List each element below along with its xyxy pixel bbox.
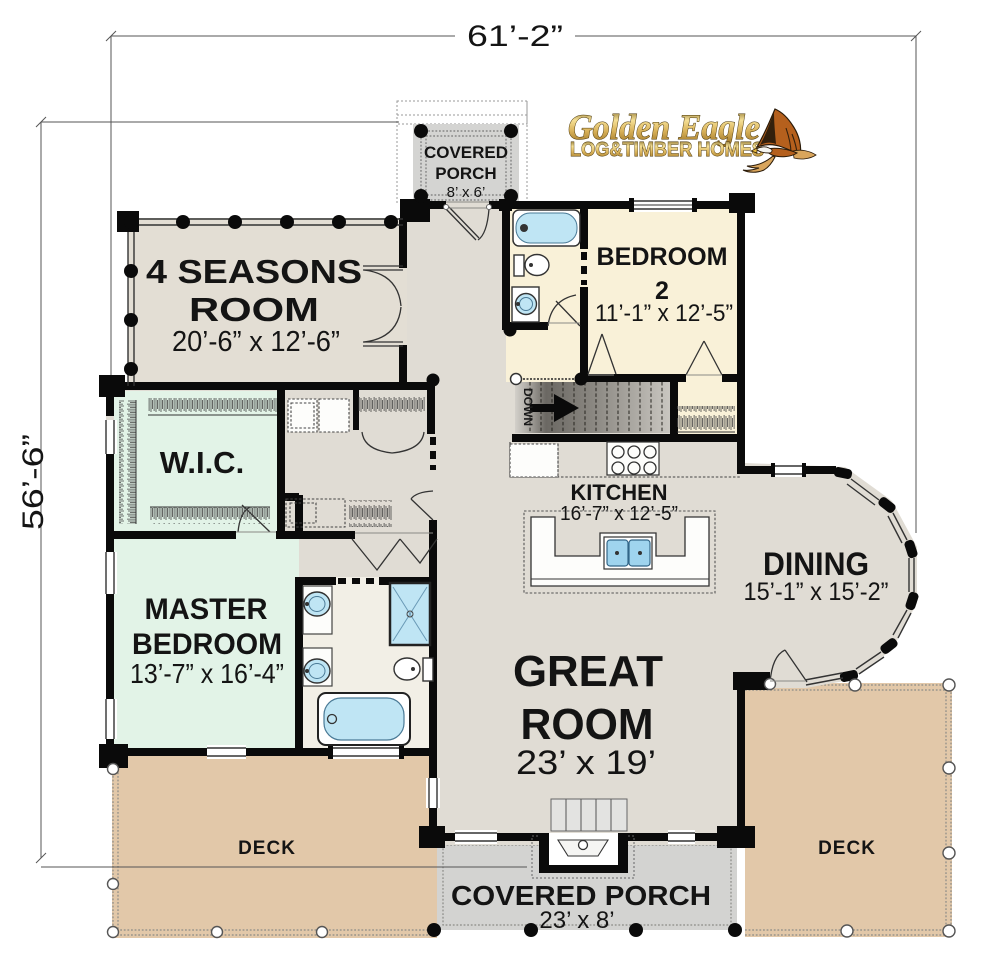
svg-text:DOWN: DOWN — [521, 388, 535, 426]
svg-text:GREAT: GREAT — [513, 647, 663, 696]
svg-text:COVERED: COVERED — [424, 143, 508, 162]
svg-text:23’ x 19’: 23’ x 19’ — [516, 744, 656, 782]
svg-text:20’-6” x 12’-6”: 20’-6” x 12’-6” — [172, 326, 340, 358]
svg-text:11’-1” x 12’-5”: 11’-1” x 12’-5” — [595, 300, 733, 327]
svg-text:23’ x 8’: 23’ x 8’ — [539, 907, 614, 934]
svg-text:56’-6”: 56’-6” — [17, 434, 50, 530]
svg-text:KITCHEN: KITCHEN — [571, 480, 668, 505]
svg-text:15’-1” x 15’-2”: 15’-1” x 15’-2” — [744, 578, 889, 606]
svg-text:61’-2”: 61’-2” — [467, 20, 563, 53]
svg-text:MASTER: MASTER — [145, 593, 268, 626]
svg-text:DECK: DECK — [818, 838, 876, 859]
svg-text:DINING: DINING — [763, 546, 869, 582]
svg-text:PORCH: PORCH — [435, 164, 496, 183]
svg-text:DECK: DECK — [238, 838, 296, 859]
svg-text:W.I.C.: W.I.C. — [160, 445, 244, 480]
svg-text:8’ x 6’: 8’ x 6’ — [447, 184, 486, 201]
svg-text:ROOM: ROOM — [189, 291, 319, 328]
svg-text:4 SEASONS: 4 SEASONS — [146, 253, 362, 290]
svg-text:ROOM: ROOM — [521, 700, 654, 749]
svg-text:LOG&TIMBER HOMES: LOG&TIMBER HOMES — [570, 139, 764, 161]
svg-text:13’-7” x 16’-4”: 13’-7” x 16’-4” — [130, 658, 284, 689]
svg-text:BEDROOM: BEDROOM — [597, 243, 728, 271]
svg-text:BEDROOM: BEDROOM — [132, 628, 282, 661]
svg-text:16’-7” x 12’-5”: 16’-7” x 12’-5” — [560, 503, 678, 525]
